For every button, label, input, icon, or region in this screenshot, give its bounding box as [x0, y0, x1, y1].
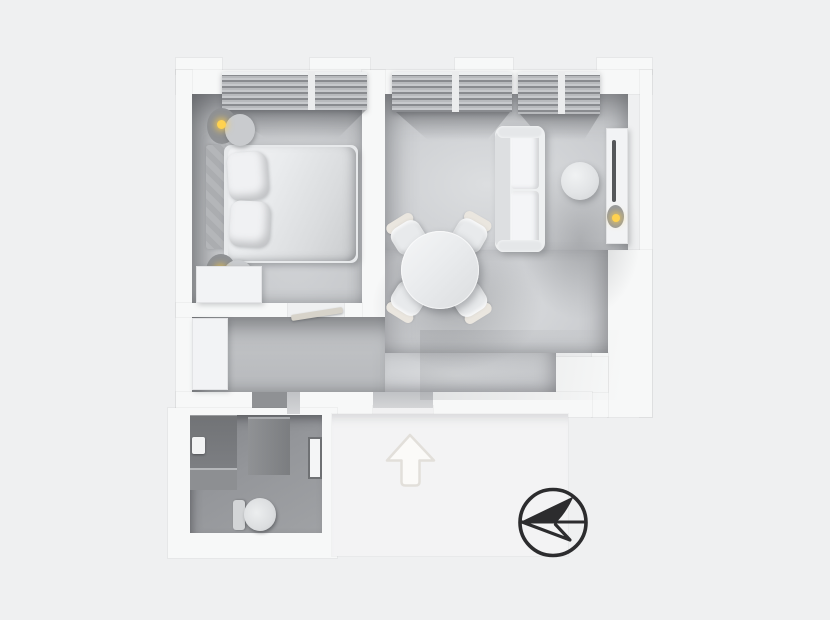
wall-left — [176, 70, 192, 408]
faucet — [192, 437, 205, 454]
page: { "page": { "title_visible_text": "" }, … — [0, 0, 830, 620]
compass-icon — [514, 484, 592, 562]
sofa-cushion — [511, 191, 539, 246]
bathroom-doorway-floor — [287, 392, 300, 414]
living-window-blinds — [518, 72, 600, 114]
pillow — [226, 151, 269, 202]
toilet — [244, 498, 276, 531]
hallway-wardrobe — [192, 318, 228, 390]
lamp-glow — [217, 120, 226, 129]
bathroom-floor — [190, 415, 322, 533]
bed-headboard — [206, 145, 226, 249]
living-room-floor — [385, 353, 556, 392]
floor-plan — [0, 0, 830, 620]
entrance-arrow-icon — [384, 432, 436, 488]
dresser — [196, 266, 262, 303]
sofa-armrest — [497, 126, 543, 138]
sink-counter — [190, 468, 237, 490]
lamp-glow — [612, 214, 620, 222]
round-dining-table — [401, 231, 479, 309]
side-table — [561, 162, 599, 200]
wall-step — [556, 357, 608, 392]
tv — [612, 140, 616, 202]
sofa-backrest — [495, 130, 510, 248]
wall-right-lower-block — [608, 250, 652, 417]
sofa-cushion — [511, 134, 539, 189]
blind-divider — [558, 72, 565, 114]
shower-partition — [248, 417, 290, 475]
bedroom-window-blinds — [222, 72, 367, 110]
blind-divider — [308, 72, 315, 110]
table-lamp — [225, 114, 255, 146]
wall-bedroom-bottom — [345, 303, 362, 317]
entrance-doorway-floor — [373, 392, 433, 408]
sofa-armrest — [497, 240, 543, 252]
bathroom-door-panel — [308, 437, 322, 479]
pillow — [229, 200, 271, 248]
living-window-blinds — [392, 72, 512, 112]
wall-bedroom-bottom — [176, 303, 287, 317]
blind-divider — [452, 72, 459, 112]
